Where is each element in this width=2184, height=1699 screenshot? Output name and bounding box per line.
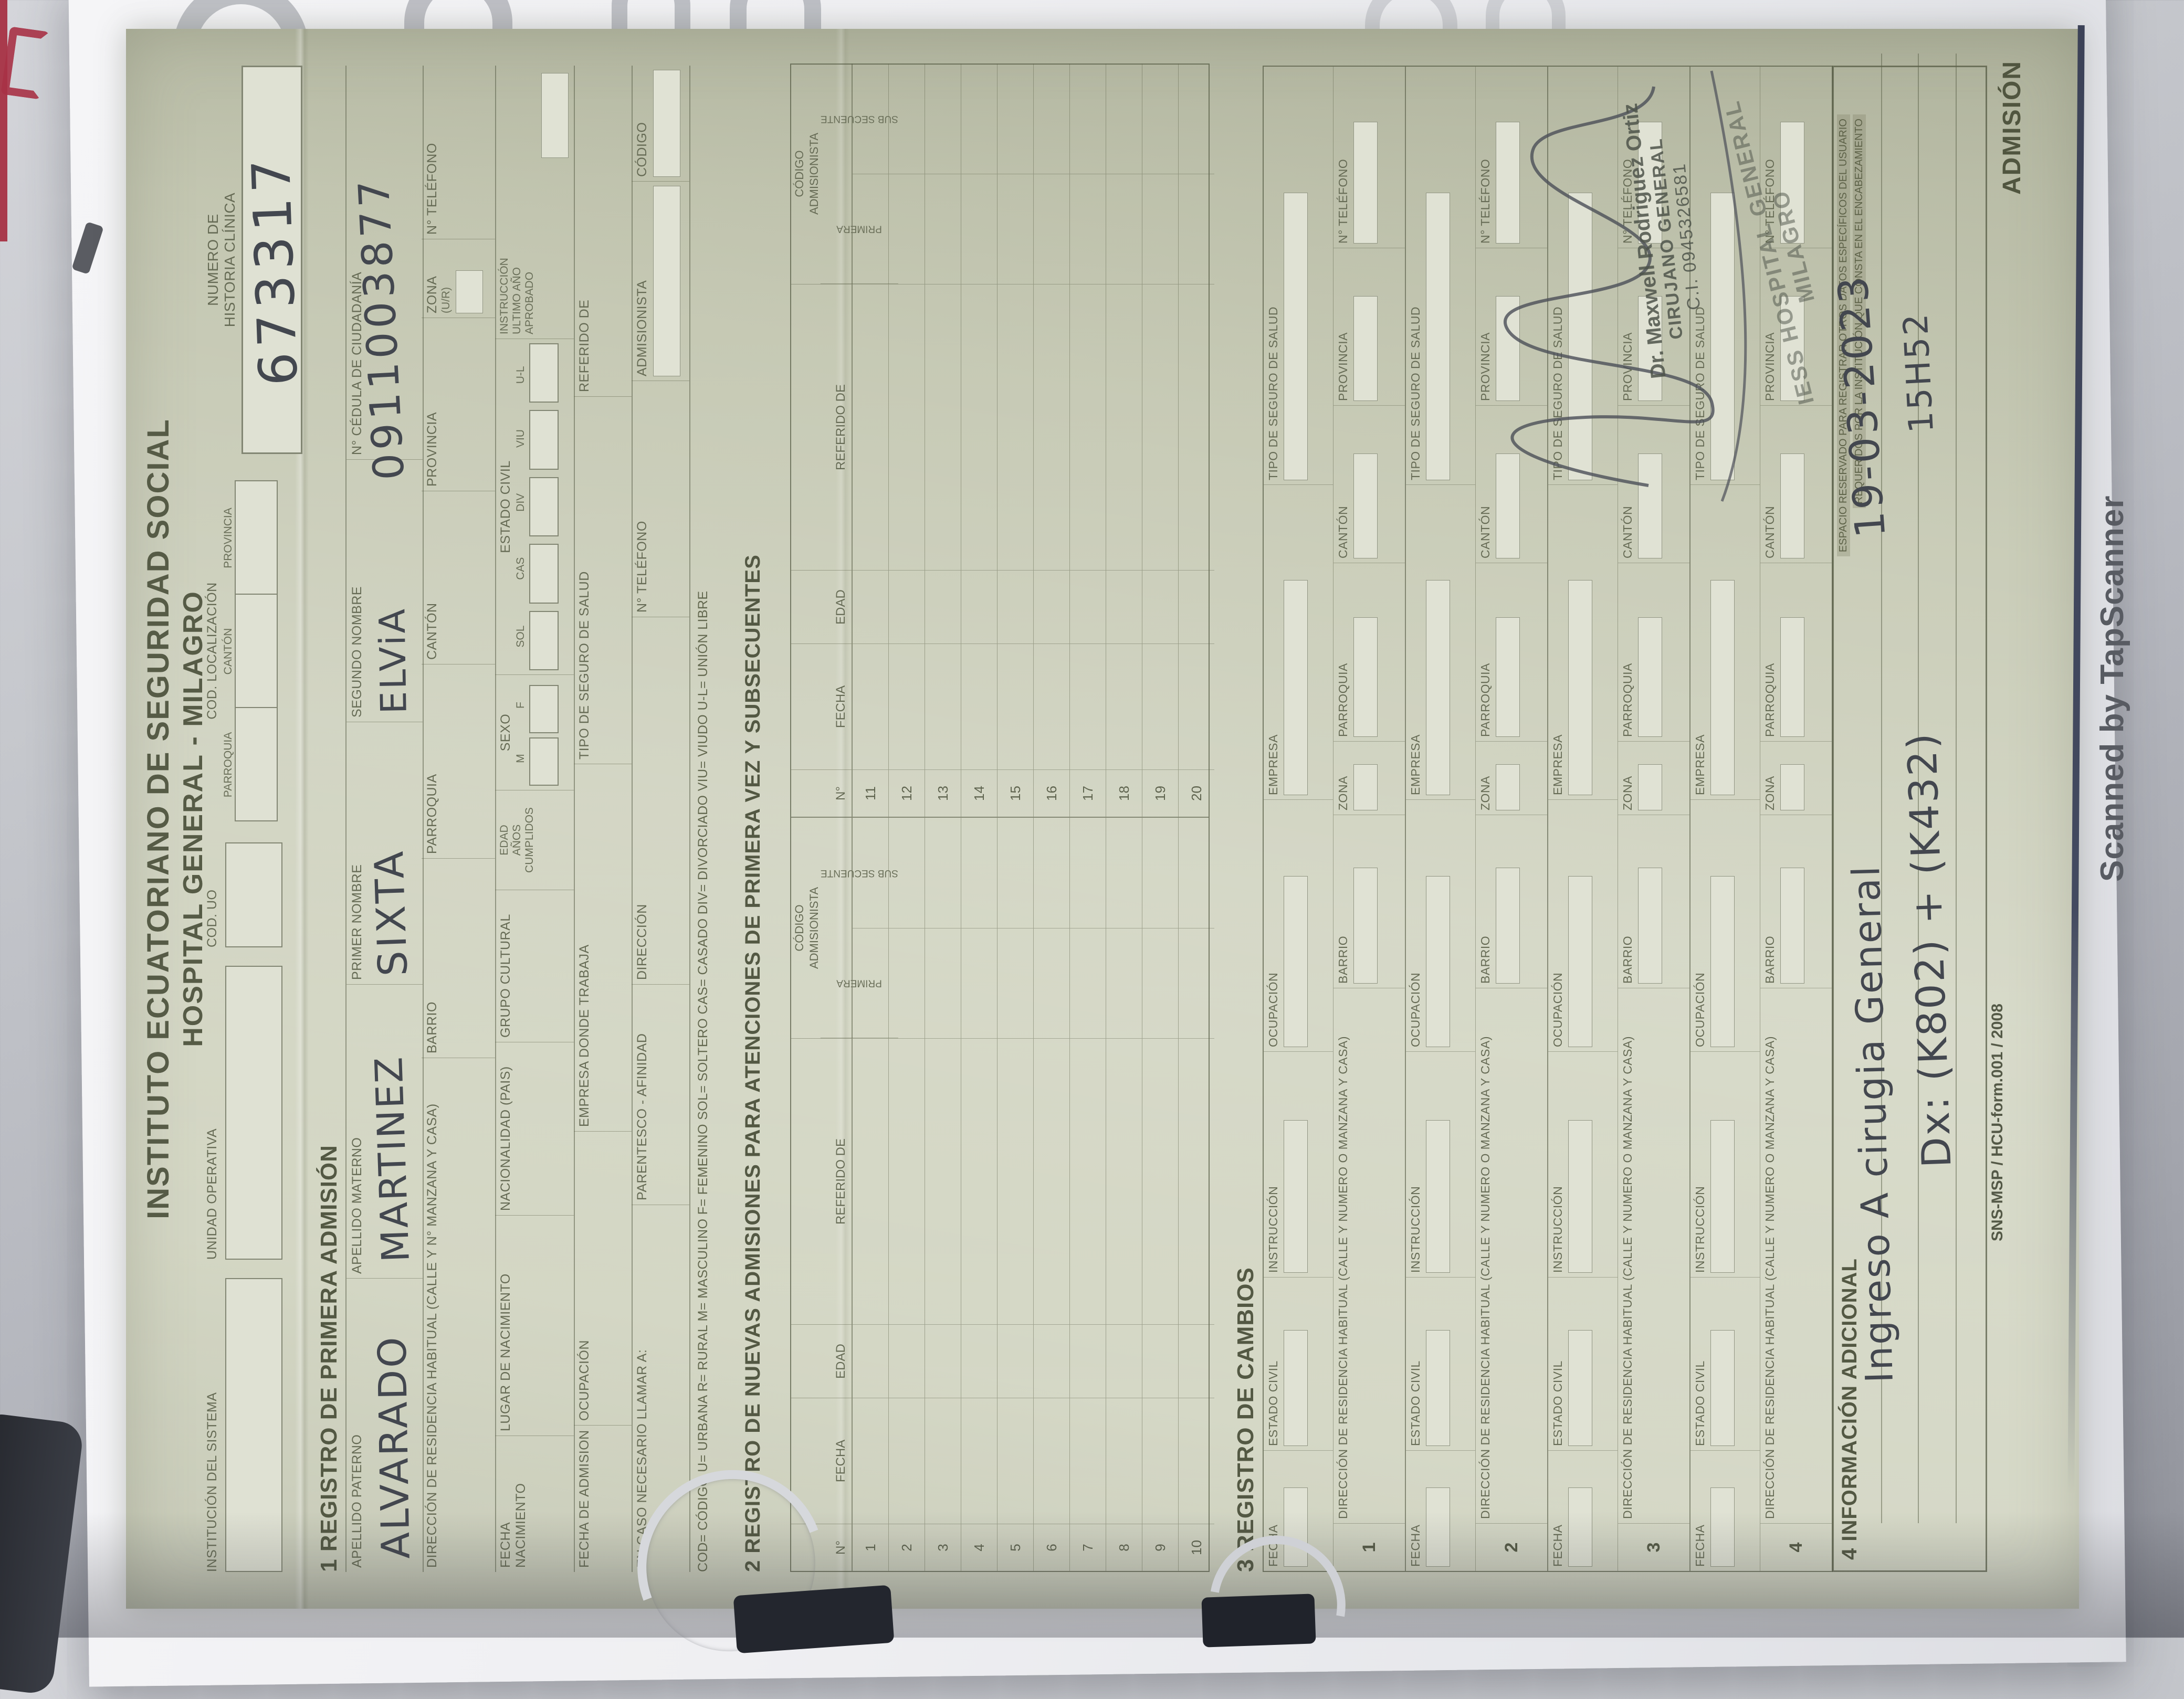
field-cell: ZONA (1760, 741, 1832, 815)
table-row: 3 (925, 818, 961, 1571)
table-row: 5 (997, 818, 1034, 1571)
input-box (1284, 193, 1308, 480)
field-label: GRUPO CULTURAL (498, 914, 513, 1038)
field-estado-civil: ESTADO CIVIL SOL CAS DIV VIU U-L (495, 339, 574, 674)
table-cell (925, 174, 961, 284)
table-header: N° FECHA EDAD REFERIDO DE CÓDIGO ADMISIO… (791, 818, 853, 1571)
field-label: DIRECCIÓN DE RESIDENCIA HABITUAL (CALLE … (1763, 1036, 1777, 1519)
tapscanner-watermark: Scanned by TapScanner (2094, 294, 2133, 882)
handwritten-primer-nombre: SIXTA (365, 848, 416, 977)
table-row: 7 (1070, 818, 1106, 1571)
input-box (1780, 764, 1804, 810)
field-sexo: SEXO M F (495, 674, 574, 790)
table-cell (961, 643, 997, 769)
field-label: EMPRESA (1693, 734, 1707, 795)
field-label: PARROQUIA (1336, 663, 1350, 737)
table-header: N° FECHA EDAD REFERIDO DE CÓDIGO ADMISIO… (791, 64, 853, 817)
field-label: PARROQUIA (1621, 663, 1634, 737)
admission-row: FECHA DE ADMISION OCUPACIÓN EMPRESA DOND… (574, 66, 633, 1572)
table-cell (1142, 1038, 1178, 1324)
field-barrio: BARRIO (422, 858, 495, 1058)
field-cod-localizacion: COD. LOCALIZACIÓN PARROQUIA CANTÓN PROVI… (205, 480, 278, 821)
field-label: PARROQUIA (222, 708, 235, 821)
field-telefono-2: N° TELÉFONO (632, 381, 689, 617)
option-label: VIU (514, 429, 527, 448)
field-label: ESTADO CIVIL (1409, 1360, 1422, 1446)
letterhead-letter (1486, 0, 1566, 31)
row-number: 15 (997, 769, 1033, 817)
field-label: BARRIO (425, 1001, 439, 1053)
field-label: OCUPACIÓN (1266, 973, 1280, 1047)
field-label: INSTRUCCIÓN (1266, 1186, 1280, 1273)
table-cell (853, 284, 888, 570)
field-label: NUMERO DE (205, 66, 222, 454)
table-cell (1179, 1324, 1214, 1398)
table-cell (1070, 64, 1106, 174)
table-cell (925, 928, 961, 1038)
table-cell (1070, 1398, 1106, 1524)
field-empresa: EMPRESA DONDE TRABAJA (574, 764, 632, 1131)
red-object-edge (0, 0, 7, 241)
field-label: INSTRUCCIÓN (1693, 1186, 1707, 1273)
table-cell (1106, 818, 1142, 928)
table-cell (1034, 643, 1069, 769)
table-cell (853, 1324, 888, 1398)
field-cell: ZONA (1476, 741, 1547, 815)
col-referido: REFERIDO DE (791, 284, 852, 570)
table-cell (1034, 64, 1069, 174)
input-box (1353, 453, 1378, 558)
field-label: OCUPACIÓN (1693, 973, 1707, 1047)
field-label: BARRIO (1478, 936, 1492, 984)
field-lugar-nacimiento: LUGAR DE NACIMIENTO (495, 1215, 574, 1436)
field-label: APROBADO (523, 272, 535, 334)
field-cell: ESTADO CIVIL (1548, 1277, 1618, 1450)
field-label: INSTRUCCIÓN (498, 258, 510, 334)
row-number: 17 (1070, 769, 1106, 817)
table-cell (1106, 1324, 1142, 1398)
field-label: PARROQUIA (1763, 663, 1777, 737)
handwritten-apellido-materno: MARTINEZ (366, 1055, 418, 1263)
table-cell (1070, 1038, 1106, 1324)
table-cell (997, 174, 1033, 284)
field-label: EMPRESA (1551, 734, 1564, 795)
handwritten-time: 15H52 (1896, 311, 1941, 434)
table-cell (1179, 1398, 1214, 1524)
field-cell: EMPRESA (1548, 484, 1618, 799)
col-codigo-admisionista: CÓDIGO ADMISIONISTA PRIMERA SUB SECUENTE (791, 64, 852, 284)
field-grupo-cultural: GRUPO CULTURAL (495, 890, 574, 1042)
field-label: CUMPLIDOS (523, 807, 535, 873)
field-label: TIPO DE SEGURO DE SALUD (1266, 307, 1280, 480)
row-number: 14 (961, 769, 997, 817)
field-label: OCUPACIÓN (1551, 973, 1564, 1047)
table-body-left: 12345678910 (853, 818, 1214, 1571)
table-cell (1179, 928, 1214, 1038)
field-label: PROVINCIA (1336, 332, 1350, 401)
birth-row: FECHA NACIMIENTO LUGAR DE NACIMIENTO NAC… (495, 66, 575, 1572)
table-cell (889, 643, 925, 769)
field-label: ZONA (425, 276, 439, 313)
table-cell (853, 1038, 888, 1324)
col-n: N° (791, 769, 852, 817)
field-cell: EMPRESA (1690, 484, 1760, 799)
field-label: SEGUNDO NOMBRE (350, 586, 364, 717)
table-cell (1070, 928, 1106, 1038)
field-label: EMPRESA (1409, 734, 1422, 795)
table-cell (1106, 174, 1142, 284)
field-cell: PARROQUIA (1333, 563, 1405, 741)
table-cell (1179, 64, 1214, 174)
field-label: OCUPACIÓN (1409, 973, 1422, 1047)
table-cell (1070, 1324, 1106, 1398)
field-label: NACIONALIDAD (PAIS) (498, 1066, 513, 1211)
field-label: CANTÓN (222, 595, 235, 708)
input-box (1568, 1330, 1592, 1446)
field-label: PARROQUIA (1478, 663, 1492, 737)
table-cell (1179, 570, 1214, 643)
table-cell (1142, 1398, 1178, 1524)
field-cell: PARROQUIA (1476, 563, 1547, 741)
table-row: 13 (925, 64, 961, 817)
input-box (1496, 764, 1520, 810)
field-label: PROVINCIA (425, 412, 439, 487)
table-cell (1142, 174, 1178, 284)
doctor-signature (1428, 55, 1764, 517)
table-cell (961, 174, 997, 284)
checkbox (529, 611, 559, 670)
col-codigo-admisionista: CÓDIGO ADMISIONISTA PRIMERA SUB SECUENTE (791, 818, 852, 1038)
ruled-line (1956, 54, 1957, 1523)
admissions-table-left: N° FECHA EDAD REFERIDO DE CÓDIGO ADMISIO… (791, 817, 1209, 1571)
field-label: COD. LOCALIZACIÓN (205, 480, 220, 821)
row-number: 12 (889, 769, 925, 817)
field-label: BARRIO (1763, 936, 1777, 984)
field-direccion: DIRECCIÓN DE RESIDENCIA HABITUAL (CALLE … (422, 1058, 495, 1572)
field-label: N° TELÉFONO (1336, 159, 1350, 244)
table-cell (1070, 174, 1106, 284)
table-cell (1179, 818, 1214, 928)
form-code: SNS-MSP / HCU-form.001 / 2008 (1989, 1004, 2007, 1241)
field-cell: ESTADO CIVIL (1264, 1277, 1333, 1450)
table-cell (961, 570, 997, 643)
input-box (541, 73, 569, 158)
option-label: SOL (514, 626, 527, 648)
input-box (1496, 617, 1520, 737)
table-cell (1106, 570, 1142, 643)
field-cell: EMPRESA (1264, 484, 1333, 799)
handwritten-historia-number: 673317 (240, 153, 309, 387)
form-subtitle: HOSPITAL GENERAL - MILAGRO (177, 29, 209, 1609)
input-box (456, 270, 483, 313)
sub-boxes (235, 480, 278, 821)
input-box (1710, 1120, 1735, 1273)
field-ocupacion: OCUPACIÓN (574, 1131, 632, 1425)
table-cell (997, 643, 1033, 769)
input-box (1426, 876, 1450, 1047)
table-row: 20 (1179, 64, 1214, 817)
field-label: ZONA (1763, 776, 1777, 810)
field-label: AÑOS (511, 825, 523, 856)
table-row: 14 (961, 64, 997, 817)
field-cell: OCUPACIÓN (1548, 799, 1618, 1051)
table-cell (925, 1324, 961, 1398)
input-box (1284, 876, 1308, 1047)
field-label: ESTADO CIVIL (498, 343, 513, 670)
admissions-table: N° FECHA EDAD REFERIDO DE CÓDIGO ADMISIO… (790, 64, 1210, 1572)
table-cell (1106, 1398, 1142, 1524)
field-edad: EDADAÑOSCUMPLIDOS (495, 790, 574, 890)
field-cell: INSTRUCCIÓN (1690, 1051, 1760, 1277)
field-label: COD. UO (205, 842, 220, 947)
table-cell (925, 64, 961, 174)
col-primera: PRIMERA (821, 928, 898, 1038)
table-cell (1034, 1398, 1069, 1524)
table-cell (925, 284, 961, 570)
field-cell: N° TELÉFONO (1333, 67, 1405, 248)
field-label: PARROQUIA (425, 774, 439, 854)
input-box (1496, 868, 1520, 984)
input-box (1284, 580, 1308, 795)
binder-clip (1201, 1594, 1316, 1647)
field-label: (U/R) (440, 287, 452, 313)
input-box (235, 480, 278, 594)
field-label: DIRECCIÓN DE RESIDENCIA HABITUAL (CALLE … (1621, 1036, 1634, 1519)
table-cell (1034, 1038, 1069, 1324)
checkbox (529, 410, 559, 469)
field-parentesco: PARENTESCO - AFINIDAD (632, 984, 689, 1205)
row-number: 11 (853, 769, 888, 817)
input-box (1353, 122, 1378, 244)
table-cell (889, 1398, 925, 1524)
col-edad: EDAD (791, 1324, 852, 1398)
table-cell (1142, 1324, 1178, 1398)
table-row: 10 (1179, 818, 1214, 1571)
field-cell: BARRIO (1760, 815, 1832, 988)
input-box (235, 594, 278, 707)
legend-line: COD= CÓDIGO U= URBANA R= RURAL M= MASCUL… (696, 66, 711, 1572)
table-cell (997, 284, 1033, 570)
field-cell: BARRIO (1476, 815, 1547, 988)
field-label: CANTÓN (1336, 506, 1350, 558)
row-number: 16 (1034, 769, 1069, 817)
field-cell: ZONA (1618, 741, 1689, 815)
table-cell (889, 570, 925, 643)
table-row: 19 (1142, 64, 1179, 817)
field-label: PROVINCIA (222, 481, 235, 595)
input-box (1353, 868, 1378, 984)
field-label: DIRECCIÓN DE RESIDENCIA HABITUAL (CALLE … (425, 1103, 439, 1568)
field-label: APELLIDO MATERNO (350, 1137, 364, 1274)
col-subsecuente: SUB SECUENTE (821, 818, 898, 928)
field-cell: PARROQUIA (1760, 563, 1832, 741)
field-label: REFERIDO DE (577, 300, 592, 392)
field-tipo-seguro: TIPO DE SEGURO DE SALUD (574, 396, 632, 764)
table-cell (1142, 643, 1178, 769)
binder-clip (733, 1585, 895, 1654)
field-cell: INSTRUCCIÓN (1264, 1051, 1333, 1277)
table-cell (853, 570, 888, 643)
option-label: M (514, 754, 527, 763)
field-label: PARENTESCO - AFINIDAD (635, 1033, 649, 1200)
table-cell (1142, 928, 1178, 1038)
field-nacionalidad: NACIONALIDAD (PAIS) (495, 1042, 574, 1215)
field-cell: ZONA (1333, 741, 1405, 815)
row-number: 13 (925, 769, 961, 817)
field-label: HISTORIA CLÍNICA (222, 66, 238, 454)
table-cell (925, 570, 961, 643)
input-box (235, 707, 278, 821)
table-cell (1070, 570, 1106, 643)
table-row: 15 (997, 64, 1034, 817)
form-title: INSTITUTO ECUATORIANO DE SEGURIDAD SOCIA… (141, 29, 176, 1609)
table-cell (889, 1038, 925, 1324)
checkbox (529, 477, 559, 536)
input-box (1710, 1330, 1735, 1446)
field-unidad-operativa: UNIDAD OPERATIVA (205, 966, 282, 1260)
table-cell (961, 818, 997, 928)
table-row: 16 (1034, 64, 1070, 817)
section2-title: 2 REGISTRO DE NUEVAS ADMISIONES PARA ATE… (741, 554, 765, 1572)
field-label: LUGAR DE NACIMIENTO (498, 1273, 513, 1431)
checkbox (529, 737, 559, 786)
table-cell (1070, 284, 1106, 570)
table-cell (997, 1324, 1033, 1398)
table-cell (1070, 818, 1106, 928)
table-cell (925, 818, 961, 928)
field-label: DIRECCIÓN DE RESIDENCIA HABITUAL (CALLE … (1478, 1036, 1492, 1519)
col-fecha: FECHA (791, 643, 852, 769)
option-label: CAS (514, 557, 527, 580)
field-cell: BARRIO (1333, 815, 1405, 988)
field-cell: CANTÓN (1333, 405, 1405, 563)
table-cell (961, 1398, 997, 1524)
field-cod-uo: COD. UO (205, 842, 282, 947)
table-cell (1034, 1324, 1069, 1398)
input-box (1780, 617, 1804, 737)
field-label: ZONA (1336, 776, 1350, 810)
field-label: INSTRUCCIÓN (1409, 1186, 1422, 1273)
field-referido: REFERIDO DE (574, 66, 632, 396)
table-cell (1034, 818, 1069, 928)
admission-form-sheet: INSTITUTO ECUATORIANO DE SEGURIDAD SOCIA… (126, 29, 2079, 1609)
field-label: ADMISIONISTA (806, 818, 821, 1038)
col-edad: EDAD (791, 570, 852, 643)
table-cell (1142, 818, 1178, 928)
table-body-right: 11121314151617181920 (853, 64, 1214, 817)
field-label: EMPRESA DONDE TRABAJA (577, 944, 592, 1127)
field-label: ESTADO CIVIL (1693, 1360, 1707, 1446)
table-cell (1034, 174, 1069, 284)
field-cell: DIRECCIÓN DE RESIDENCIA HABITUAL (CALLE … (1476, 988, 1547, 1523)
field-label: EMPRESA (1266, 734, 1280, 795)
option-label: F (514, 702, 527, 709)
table-cell (997, 928, 1033, 1038)
checkbox (529, 685, 559, 733)
row-number: 20 (1179, 769, 1214, 817)
field-cell: OCUPACIÓN (1406, 799, 1475, 1051)
col-subsecuente: SUB SECUENTE (821, 64, 898, 174)
field-label: N° TELÉFONO (425, 143, 439, 235)
table-cell (889, 284, 925, 570)
table-cell (1179, 1038, 1214, 1324)
input-box (1426, 580, 1450, 795)
table-cell (1142, 64, 1178, 174)
field-label: DIRECCIÓN (635, 904, 649, 980)
table-cell (853, 643, 888, 769)
field-label: PROVINCIA (1763, 332, 1777, 401)
residence-row: DIRECCIÓN DE RESIDENCIA HABITUAL (CALLE … (422, 66, 496, 1572)
field-label: N° TELÉFONO (635, 521, 649, 613)
input-box (1426, 1330, 1450, 1446)
input-box (1710, 876, 1735, 1047)
field-cell: TIPO DE SEGURO DE SALUD (1264, 67, 1333, 484)
table-cell (925, 1038, 961, 1324)
table-row: 8 (1106, 818, 1142, 1571)
field-admisionista: ADMISIONISTA (632, 181, 689, 381)
handwritten-segundo-nombre: ELViA (372, 607, 415, 714)
table-cell (1070, 643, 1106, 769)
table-cell (961, 1324, 997, 1398)
table-cell (1142, 284, 1178, 570)
input-box (1353, 296, 1378, 401)
field-label: CÓDIGO (635, 122, 649, 177)
input-box (1710, 580, 1735, 795)
table-cell (1179, 174, 1214, 284)
input-box (1780, 453, 1804, 558)
field-cell: BARRIO (1618, 815, 1689, 988)
field-label: ADMISIONISTA (806, 64, 821, 284)
table-cell (997, 818, 1033, 928)
admision-label: ADMISIÓN (1998, 60, 2026, 195)
field-label: CANTÓN (1763, 506, 1777, 558)
table-cell (1106, 643, 1142, 769)
field-label: ZONA (1621, 776, 1634, 810)
table-row: 17 (1070, 64, 1106, 817)
field-label: ADMISIONISTA (635, 280, 649, 376)
field-label: DIRECCIÓN DE RESIDENCIA HABITUAL (CALLE … (1336, 1036, 1350, 1519)
table-cell (853, 1398, 888, 1524)
input-box (1353, 617, 1378, 737)
table-row: 18 (1106, 64, 1142, 817)
field-direccion-2: DIRECCIÓN (632, 617, 689, 984)
admissions-table-right: N° FECHA EDAD REFERIDO DE CÓDIGO ADMISIO… (791, 64, 1209, 817)
field-telefono: N° TELÉFONO (422, 66, 495, 239)
field-label: TIPO DE SEGURO DE SALUD (577, 571, 592, 759)
field-cell: ESTADO CIVIL (1406, 1277, 1475, 1450)
field-cell: PROVINCIA (1333, 248, 1405, 405)
input-box (1568, 1120, 1592, 1273)
option-label: DIV (514, 493, 527, 512)
field-parroquia: PARROQUIA (422, 664, 495, 858)
table-row: 4 (961, 818, 997, 1571)
desk-shadow (0, 1512, 2184, 1638)
field-cell: OCUPACIÓN (1690, 799, 1760, 1051)
field-cell: INSTRUCCIÓN (1548, 1051, 1618, 1277)
field-cell: ESTADO CIVIL (1690, 1277, 1760, 1450)
field-label: BARRIO (1336, 936, 1350, 984)
input-box (225, 966, 282, 1260)
col-primera: PRIMERA (821, 174, 898, 284)
field-canton: CANTÓN (422, 491, 495, 664)
checkbox (529, 544, 559, 603)
section1-title: 1 REGISTRO DE PRIMERA ADMISIÓN (316, 1145, 342, 1572)
field-label: CANTÓN (425, 603, 439, 660)
field-label: TIPO DE SEGURO DE SALUD (1409, 307, 1422, 480)
table-cell (997, 64, 1033, 174)
table-cell (997, 570, 1033, 643)
table-cell (997, 1038, 1033, 1324)
